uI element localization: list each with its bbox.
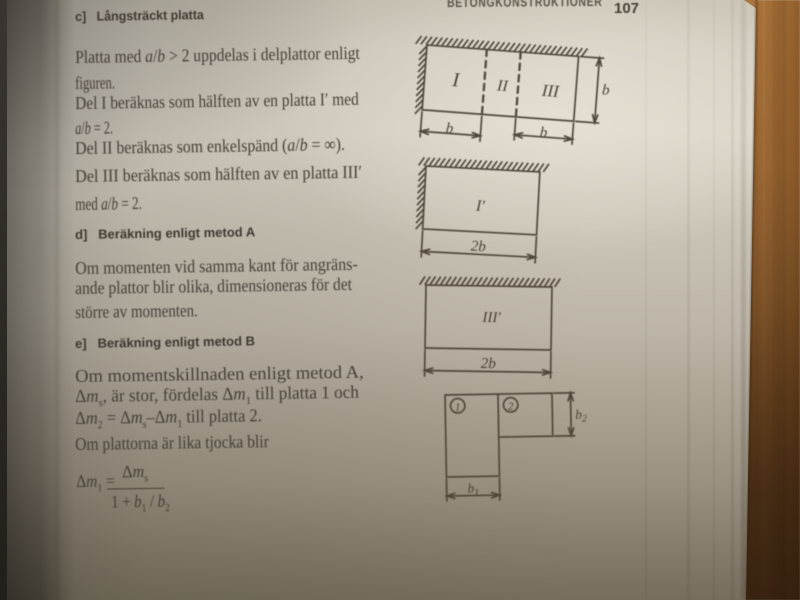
svg-text:b: b <box>601 82 610 99</box>
svg-text:I: I <box>451 69 462 92</box>
svg-text:b: b <box>539 125 548 142</box>
svg-text:2b: 2b <box>470 238 486 255</box>
svg-text:b2: b2 <box>575 407 587 425</box>
svg-text:I′: I′ <box>475 198 486 216</box>
svg-text:III: III <box>540 81 561 101</box>
svg-text:2b: 2b <box>481 356 497 372</box>
svg-text:b: b <box>445 121 454 138</box>
svg-text:2: 2 <box>508 401 514 413</box>
svg-text:II: II <box>495 77 509 95</box>
svg-text:1: 1 <box>455 402 461 414</box>
svg-text:III′: III′ <box>481 310 501 326</box>
